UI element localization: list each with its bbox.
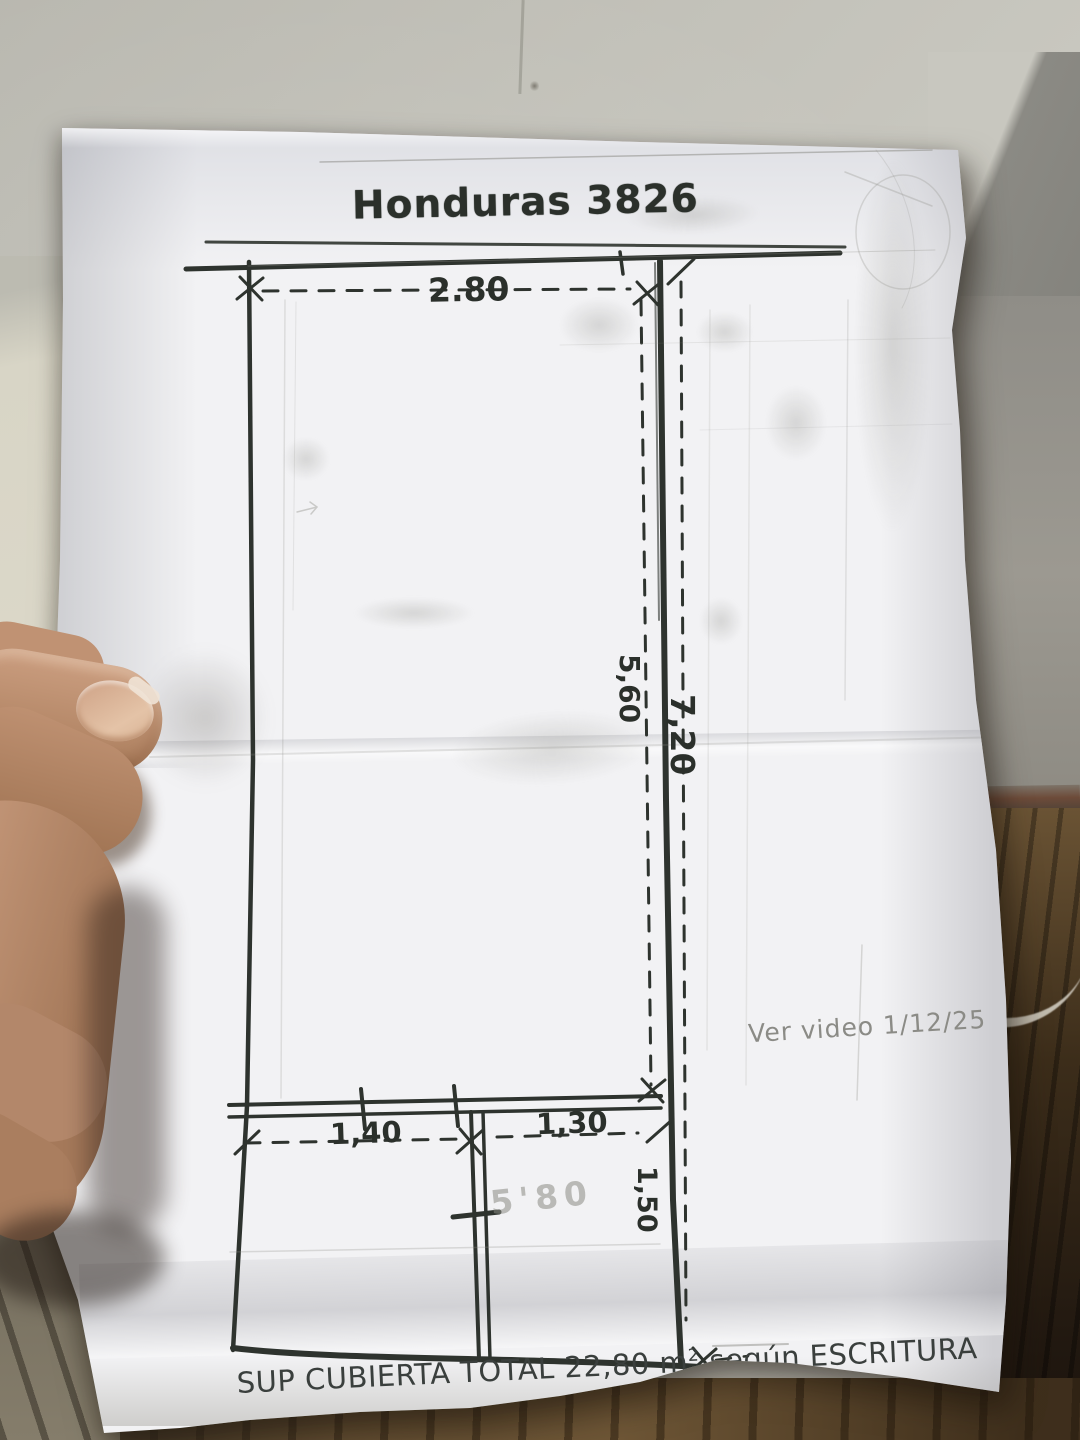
- dimension-label-bottom-left-width: 1,40: [329, 1115, 402, 1151]
- footer-superscript: 2: [687, 1346, 699, 1367]
- interior-wall-line-b: [483, 1112, 490, 1359]
- hand: [0, 595, 270, 1315]
- hand-side-shadow: [88, 887, 166, 1232]
- dimension-label-top-width: 2.80: [428, 269, 510, 309]
- top-wall-line: [186, 253, 840, 269]
- wall-tick: [454, 1086, 458, 1126]
- top-boundary-line-upper: [206, 242, 845, 247]
- dimension-label-bottom-right-height: 1,50: [631, 1166, 662, 1233]
- dim-line-7-20: [681, 282, 686, 1320]
- right-wall-line: [660, 261, 681, 1362]
- dimension-label-inner-height: 5,60: [613, 654, 646, 723]
- wall-tick: [620, 252, 623, 274]
- hand-bottom-shadow: [0, 1211, 165, 1306]
- plan-title: Honduras 3826: [352, 176, 700, 228]
- lower-room-wall-upper: [229, 1096, 661, 1105]
- dimension-label-total-height: 7,20: [663, 694, 702, 775]
- photo-scene: Honduras 3826 2.80 5,60 7,20 1,40 1,30 1…: [0, 0, 1080, 1440]
- crease-line: [230, 1244, 660, 1252]
- fold-crease-line: [150, 737, 1005, 757]
- dimension-label-bottom-right-width: 1,30: [535, 1105, 608, 1141]
- pencil-lines: [150, 150, 1005, 1346]
